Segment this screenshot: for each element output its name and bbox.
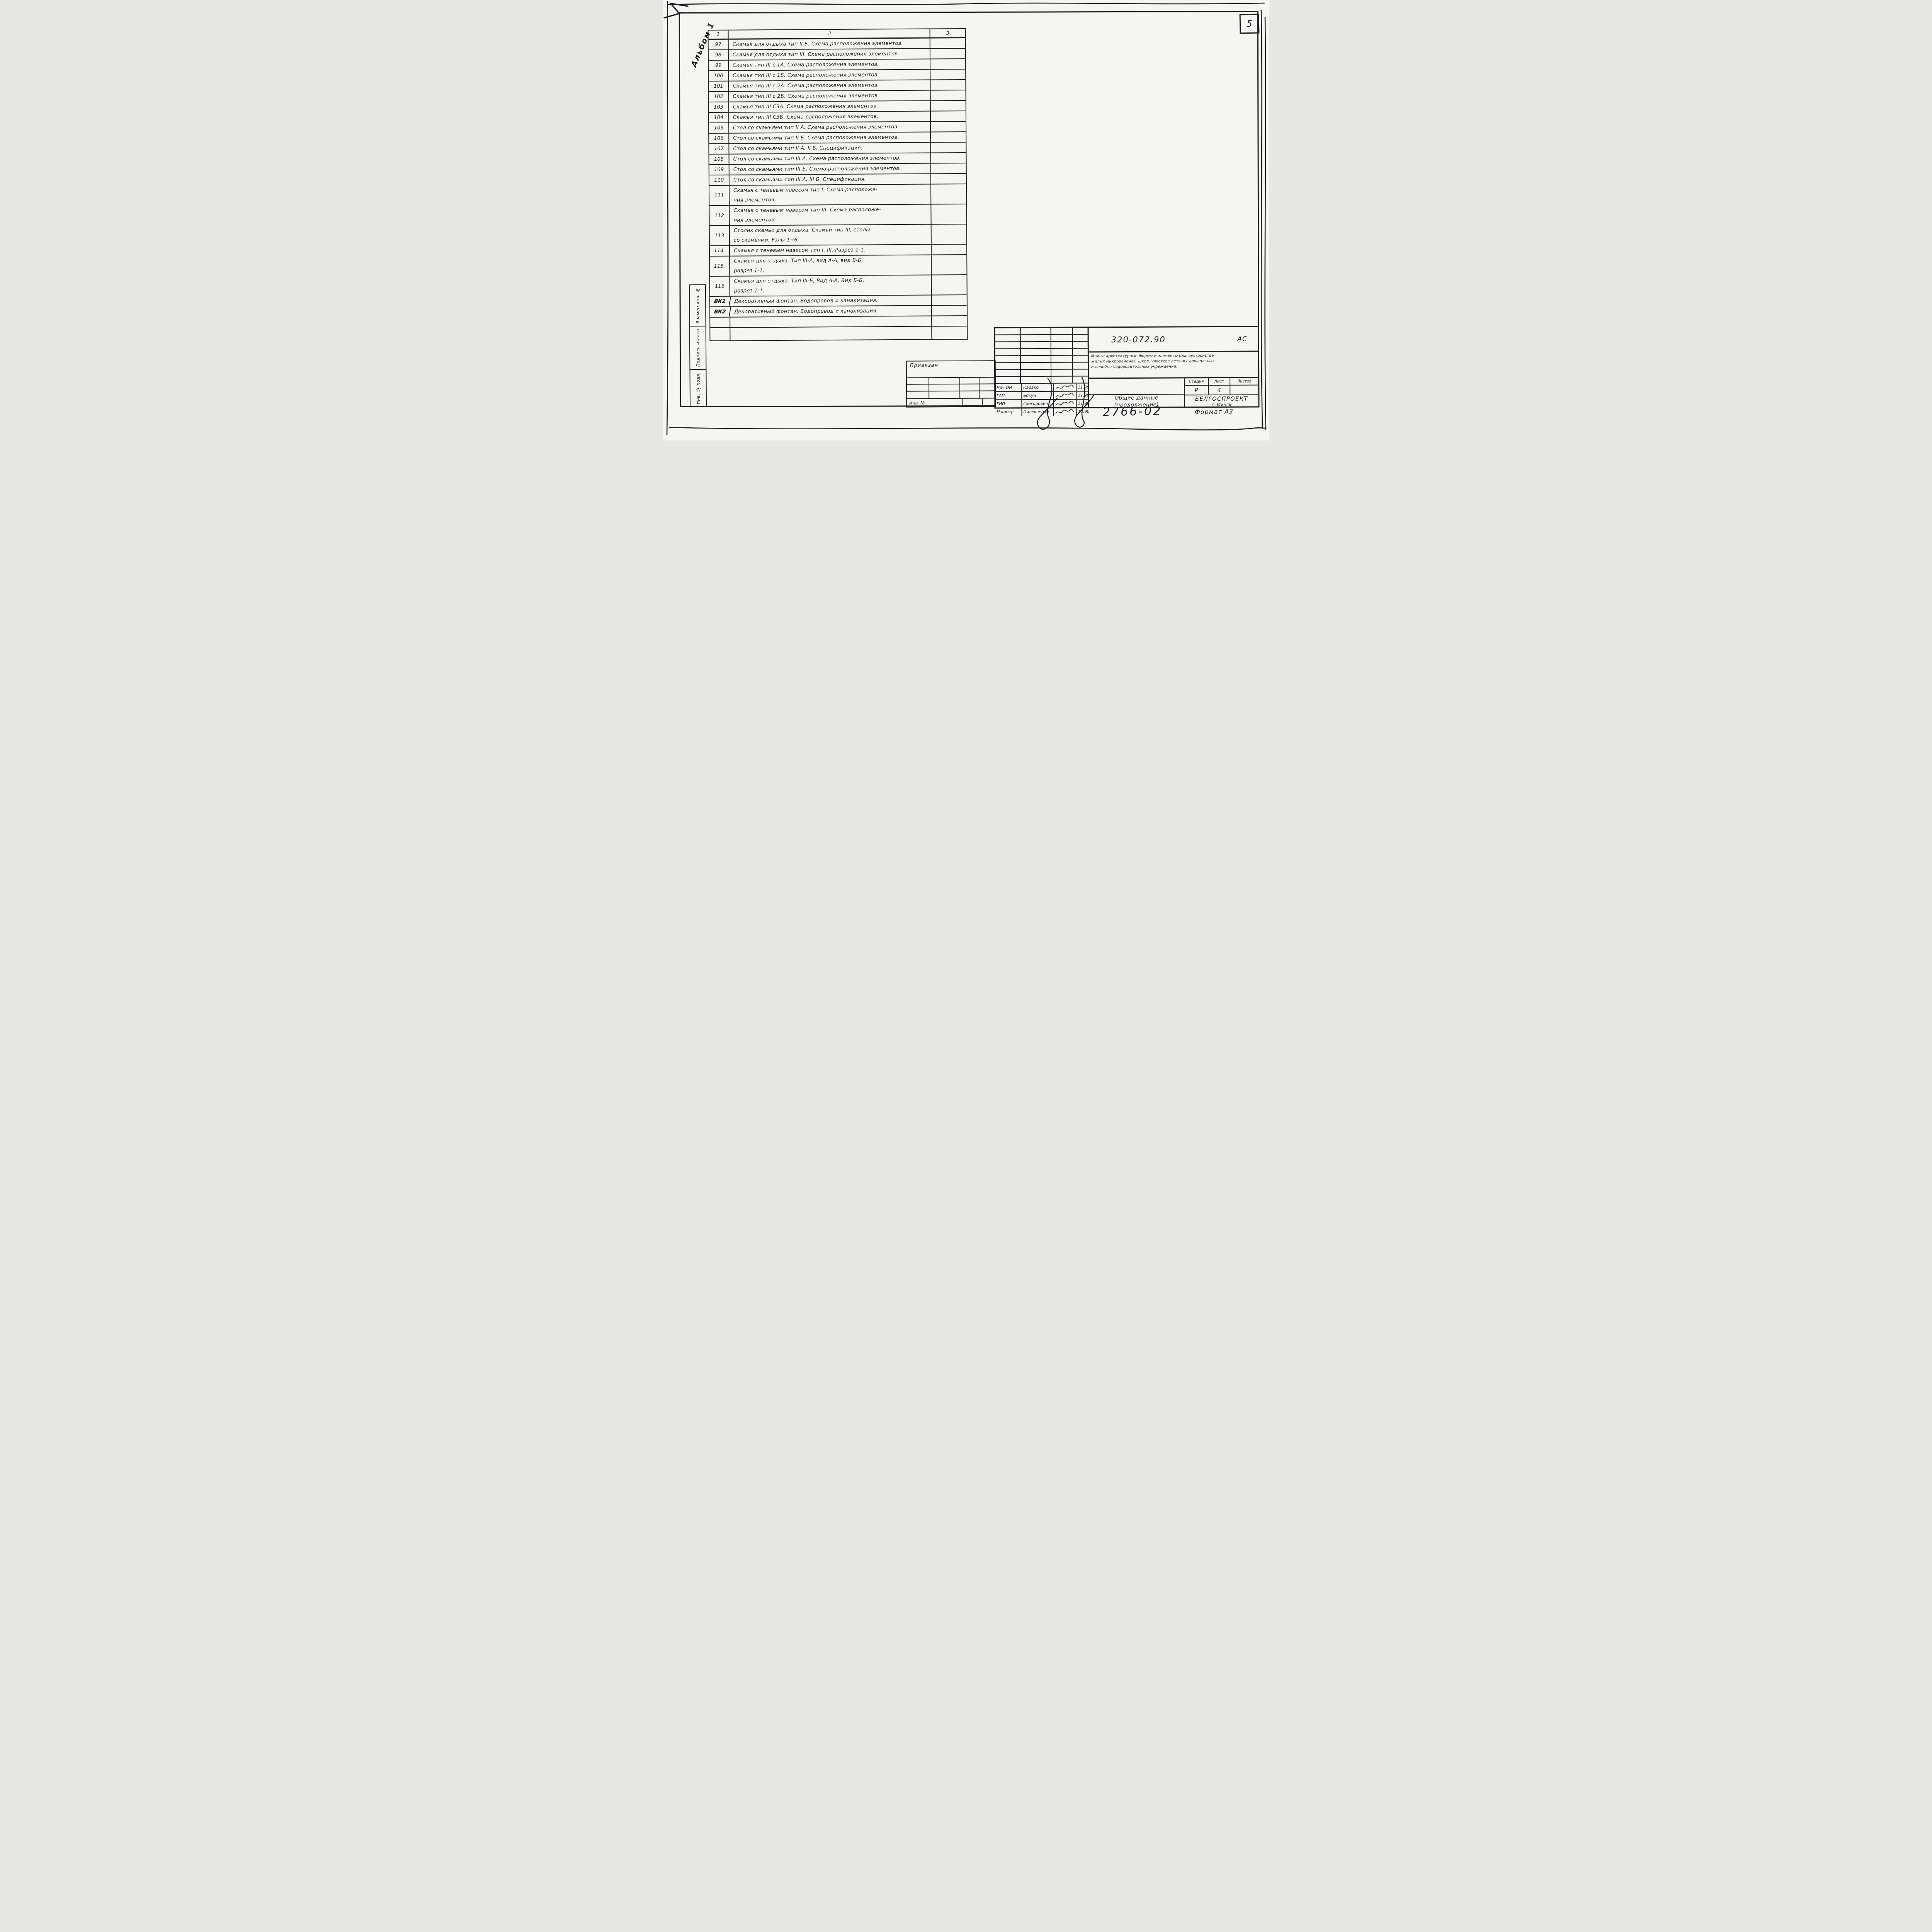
title-block: Нач ОИКарако11.90ГАПБокун11.90ГИПГригоро… (994, 326, 1260, 409)
row-note-cell (932, 275, 966, 295)
empty-cell (1051, 328, 1073, 334)
row-number: 110 (709, 175, 730, 185)
row-note-cell (931, 174, 966, 184)
empty-cell (907, 385, 929, 392)
table-row: 110Стол со скамьями тип III А, III Б. Сп… (709, 174, 966, 186)
row-number: 106 (709, 134, 729, 143)
empty-cell (1021, 342, 1051, 348)
row-number: 102 (709, 92, 729, 102)
row-note-cell (931, 163, 966, 173)
empty-cell (963, 399, 983, 406)
empty-cell (983, 398, 995, 406)
row-title: Скамья для отдыха тип III. Схема располо… (729, 49, 930, 60)
table-row: 97Скамья для отдыха тип II Б. Схема расп… (709, 38, 965, 50)
empty-cell (1021, 349, 1051, 355)
signature-cell (1054, 384, 1077, 391)
row-note-cell (932, 224, 966, 244)
row-note-cell (931, 153, 966, 163)
row-note-cell (931, 111, 966, 121)
empty-cell (929, 378, 960, 385)
empty-cell (995, 377, 1021, 383)
table-row: 108Стол со скамьями тип III А. Схема рас… (709, 153, 966, 165)
signature-grid-empty-row (995, 335, 1088, 342)
row-number: 113 (710, 226, 730, 245)
signature-grid-empty-row (995, 376, 1088, 384)
row-title: Скамья тип III с 2А. Схема расположения … (729, 80, 930, 91)
contents-table: 1 2 3 97Скамья для отдыха тип II Б. Схем… (708, 28, 968, 341)
row-note-cell (930, 49, 965, 59)
table-row: 109Стол со скамьями тип III Б. Схема рас… (709, 163, 966, 175)
row-number: 114. (710, 246, 730, 256)
signature-grid-empty-row (995, 342, 1088, 349)
order-number: 2766-02 (1103, 404, 1162, 419)
row-title: Скамья для отдыха, Тип III-А, вид А-А, в… (730, 255, 932, 276)
row-title: Стол со скамьями тип III А. Схема распол… (730, 153, 931, 164)
table-row: 105Стол со скамьями тип II А. Схема расп… (709, 122, 966, 134)
row-number (710, 318, 730, 327)
empty-cell (1021, 363, 1051, 369)
empty-cell (1073, 376, 1088, 383)
row-title: Скамья тип III С3А. Схема расположения э… (729, 101, 931, 112)
empty-cell (1051, 349, 1073, 355)
row-note-cell (930, 70, 965, 80)
sheet-number-box: 5 (1240, 14, 1260, 34)
signature-role: ГИП (995, 400, 1022, 408)
row-note-cell (932, 295, 967, 305)
empty-cell (960, 391, 980, 398)
attached-label: Привязан (907, 361, 995, 378)
signature-grid: Нач ОИКарако11.90ГАПБокун11.90ГИПГригоро… (995, 328, 1089, 407)
signature-date: 11.90 (1077, 383, 1089, 391)
row-number: ВК1 (709, 297, 731, 306)
row-title: Скамья с теневым навесом тип I. Схема ра… (730, 185, 931, 205)
organization-city: г. Минск (1212, 402, 1232, 407)
code-box: 320-072.90 АС (1089, 327, 1258, 352)
stage-org-column: Стадия Лист Листов Р 4 БЕЛГОСПРОЕКТ г. М… (1185, 378, 1258, 408)
side-strip-label: Взамен инв. № (695, 287, 700, 323)
row-title: Скамья тип III с 2Б. Схема расположения … (729, 91, 931, 102)
table-row: 113Столик скамьи для отдыха, Скамьи тип … (710, 224, 966, 246)
empty-cell (1021, 328, 1051, 334)
signature-name: Пилюшенко (1022, 408, 1054, 416)
empty-cell (1021, 370, 1051, 376)
organization-box: БЕЛГОСПРОЕКТ г. Минск (1185, 395, 1258, 408)
project-title: Малые архитектурные формы и элементы бла… (1089, 351, 1258, 379)
attachment-bottom-row: Инв. № (907, 398, 995, 406)
signature-date: 11.90 (1077, 392, 1089, 399)
sheet-title-column: Общие данные (продолжение) (1089, 378, 1185, 408)
empty-cell (1051, 356, 1073, 362)
signature-row: Н.контр.Пилюшенко11.90 (995, 408, 1088, 416)
signature-date: 11.90 (1077, 400, 1089, 407)
row-note-cell (931, 132, 966, 142)
side-strip-cell: Инв. № подл. (690, 370, 706, 406)
row-title: Декоративный фонтан. Водопровод и канали… (730, 306, 932, 317)
row-note-cell (930, 59, 965, 69)
row-number: ВК2 (709, 307, 731, 317)
signature-grid-empty-row (995, 328, 1088, 335)
row-number: 105 (709, 123, 729, 133)
table-row: ВК1Декоративный фонтан. Водопровод и кан… (710, 295, 967, 307)
row-note-cell (931, 90, 966, 100)
row-title (730, 316, 932, 327)
empty-cell (995, 342, 1021, 348)
row-number: 101 (709, 82, 729, 91)
row-note-cell (931, 204, 966, 224)
sheets-label: Листов (1230, 378, 1258, 385)
table-row: 103Скамья тип III С3А. Схема расположени… (709, 101, 966, 113)
empty-cell (995, 349, 1021, 355)
empty-cell (1073, 349, 1088, 355)
row-number (710, 328, 730, 340)
sheet-label: Лист (1209, 378, 1230, 385)
signature-row: Нач ОИКарако11.90 (995, 383, 1088, 392)
table-row: 106Стол со скамьями тип II Б. Схема расп… (709, 132, 966, 144)
table-row: 116Скамья для отдыха. Тип III-Б, Вид А-А… (710, 275, 966, 297)
row-title: Стол со скамьями тип II Б. Схема располо… (729, 133, 931, 143)
row-note-cell (930, 80, 965, 90)
row-number: 98 (709, 50, 729, 60)
table-row: 104Скамья тип III С3Б. Схема расположени… (709, 111, 966, 123)
table-row: 107Стол со скамьями тип II А, II Б. Спец… (709, 143, 966, 155)
signature-role: Нач ОИ (995, 384, 1022, 391)
signature-cell (1054, 392, 1077, 399)
row-title: Столик скамьи для отдыха, Скамьи тип III… (730, 225, 932, 245)
row-number: 103 (709, 102, 729, 112)
signature-row: ГИПГригорович11.90 (995, 400, 1088, 408)
format-label: Формат А3 (1195, 408, 1233, 416)
sheet-value: 4 (1209, 386, 1230, 395)
row-title: Скамья тип III с 1Б. Схема расположения … (729, 70, 930, 81)
empty-cell (980, 384, 995, 391)
empty-cell (1073, 335, 1088, 341)
signature-date: 11.90 (1077, 408, 1089, 415)
row-number: 104 (709, 113, 729, 122)
row-number: 97 (709, 40, 729, 49)
row-title: Стол со скамьями тип II А, II Б. Специфи… (729, 143, 931, 154)
row-number: 100 (709, 71, 729, 81)
table-row: 101Скамья тип III с 2А. Схема расположен… (709, 80, 965, 92)
side-strip-label: Подпись и дата (695, 329, 701, 367)
side-strip-cell: Подпись и дата (690, 327, 706, 370)
signature-grid-empty-row (995, 369, 1088, 377)
empty-cell (980, 391, 995, 398)
row-number: 108 (709, 155, 730, 164)
row-title: Стол со скамьями тип III А, III Б. Специ… (730, 174, 931, 185)
sheets-value (1230, 386, 1258, 395)
empty-cell (907, 391, 929, 398)
row-number: 99 (709, 61, 729, 70)
table-row (710, 316, 967, 328)
empty-cell (995, 335, 1021, 341)
empty-cell (995, 356, 1021, 362)
table-row: 115.Скамья для отдыха, Тип III-А, вид А-… (710, 255, 966, 277)
row-title: Скамья для отдыха. Тип III-Б, Вид А-А, В… (730, 276, 932, 296)
empty-cell (929, 384, 960, 391)
row-title: Скамья для отдыха тип II Б. Схема распол… (729, 39, 930, 49)
empty-cell (1073, 369, 1088, 376)
table-row: 111Скамья с теневым навесом тип I. Схема… (709, 184, 966, 206)
table-row: ВК2Декоративный фонтан. Водопровод и кан… (710, 306, 967, 318)
empty-cell (995, 328, 1021, 334)
header-col-number: 1 (709, 31, 729, 39)
row-note-cell (931, 184, 966, 204)
toc-body: 97Скамья для отдыха тип II Б. Схема расп… (709, 38, 967, 340)
row-title: Скамья тип III С3Б. Схема расположения э… (729, 112, 931, 122)
signature-cell (1054, 400, 1077, 407)
empty-cell (995, 363, 1021, 369)
row-number: 109 (709, 165, 730, 175)
empty-cell (1073, 328, 1088, 334)
row-number: 107 (709, 144, 729, 154)
empty-cell (1051, 370, 1073, 376)
empty-cell (1021, 335, 1051, 341)
signature-role: ГАП (995, 392, 1022, 399)
table-row: 98Скамья для отдыха тип III. Схема распо… (709, 49, 965, 61)
empty-cell (1021, 356, 1051, 362)
signature-rows: Нач ОИКарако11.90ГАПБокун11.90ГИПГригоро… (995, 383, 1088, 416)
row-title: Скамья с теневым навесом тип I, III. Раз… (730, 245, 932, 256)
signature-name: Карако (1022, 384, 1054, 391)
row-title: Стол со скамьями тип II А. Схема располо… (729, 122, 931, 133)
signature-grid-empty-rows (995, 328, 1088, 384)
row-number: 116 (710, 277, 730, 296)
stage-value: Р (1185, 386, 1209, 395)
empty-cell (1051, 363, 1073, 369)
signature-name: Бокун (1022, 392, 1054, 400)
row-note-cell (932, 255, 966, 275)
empty-cell (1021, 377, 1051, 383)
attachment-grid (907, 378, 995, 399)
row-number: 112 (709, 206, 730, 225)
signature-cell (1054, 408, 1077, 415)
signature-name: Григорович (1022, 400, 1054, 408)
signature-grid-empty-row (995, 355, 1088, 363)
organization-name: БЕЛГОСПРОЕКТ (1195, 396, 1248, 402)
row-title: Скамья тип III с 1А. Схема расположения … (729, 60, 930, 70)
row-note-cell (932, 327, 967, 339)
empty-cell (1051, 377, 1073, 383)
table-row: 114.Скамья с теневым навесом тип I, III.… (710, 245, 966, 257)
row-title (730, 327, 932, 340)
signature-row: ГАПБокун11.90 (995, 392, 1088, 400)
title-block-right: 320-072.90 АС Малые архитектурные формы … (1089, 327, 1259, 407)
row-note-cell (931, 143, 966, 153)
row-note-cell (932, 316, 967, 326)
title-block-bottom: Общие данные (продолжение) Стадия Лист Л… (1089, 378, 1258, 409)
row-note-cell (932, 306, 967, 316)
row-title: Стол со скамьями тип III Б. Схема распол… (730, 164, 931, 175)
row-title: Декоративный фонтан. Водопровод и канали… (730, 296, 932, 306)
attachment-block: Привязан Инв. № (906, 360, 996, 407)
empty-cell (907, 378, 929, 385)
stage-header-row: Стадия Лист Листов (1185, 378, 1258, 386)
signature-scribble (1055, 401, 1074, 407)
side-strip-cell: Взамен инв. № (690, 285, 706, 327)
table-row: 102Скамья тип III с 2Б. Схема расположен… (709, 90, 966, 102)
empty-cell (960, 384, 980, 391)
empty-cell (995, 370, 1021, 376)
row-note-cell (931, 122, 966, 132)
stage-values-row: Р 4 (1185, 386, 1258, 396)
table-row: 112Скамья с теневым навесом тип III. Схе… (709, 204, 966, 226)
empty-cell (1089, 378, 1184, 395)
document-mark: АС (1237, 335, 1247, 343)
row-note-cell (932, 245, 966, 255)
drawing-sheet: 5 Альбом 1 1 2 3 97Скамья для отдыха тип… (663, 0, 1269, 440)
row-note-cell (930, 38, 965, 48)
side-label-strip: Взамен инв. №Подпись и датаИнв. № подл. (689, 284, 707, 407)
header-col-note: 3 (930, 29, 965, 37)
inventory-label: Инв. № (907, 399, 963, 407)
empty-cell (1073, 342, 1088, 348)
empty-cell (1073, 355, 1088, 362)
empty-cell (929, 391, 960, 398)
signature-grid-empty-row (995, 349, 1088, 356)
side-strip-label: Инв. № подл. (696, 372, 701, 405)
signature-scribble (1055, 392, 1074, 398)
signature-scribble (1055, 409, 1074, 415)
project-code: 320-072.90 (1111, 335, 1166, 344)
table-row: 100Скамья тип III с 1Б. Схема расположен… (709, 70, 965, 82)
row-note-cell (931, 101, 966, 111)
signature-scribble (1055, 384, 1074, 390)
empty-cell (1051, 342, 1073, 348)
table-row: 99Скамья тип III с 1А. Схема расположени… (709, 59, 965, 71)
row-number: 115. (710, 257, 730, 276)
empty-cell (1073, 362, 1088, 369)
stage-label: Стадия (1185, 378, 1209, 385)
signature-role: Н.контр. (995, 408, 1022, 416)
row-title: Скамья с теневым навесом тип III. Схема … (730, 205, 931, 225)
empty-cell (960, 378, 980, 385)
header-col-title: 2 (729, 29, 930, 39)
row-number: 111 (709, 186, 730, 205)
empty-cell (980, 378, 995, 384)
signature-grid-empty-row (995, 362, 1088, 370)
table-row (710, 327, 967, 340)
sheet-number: 5 (1247, 19, 1252, 29)
empty-cell (1051, 335, 1073, 341)
